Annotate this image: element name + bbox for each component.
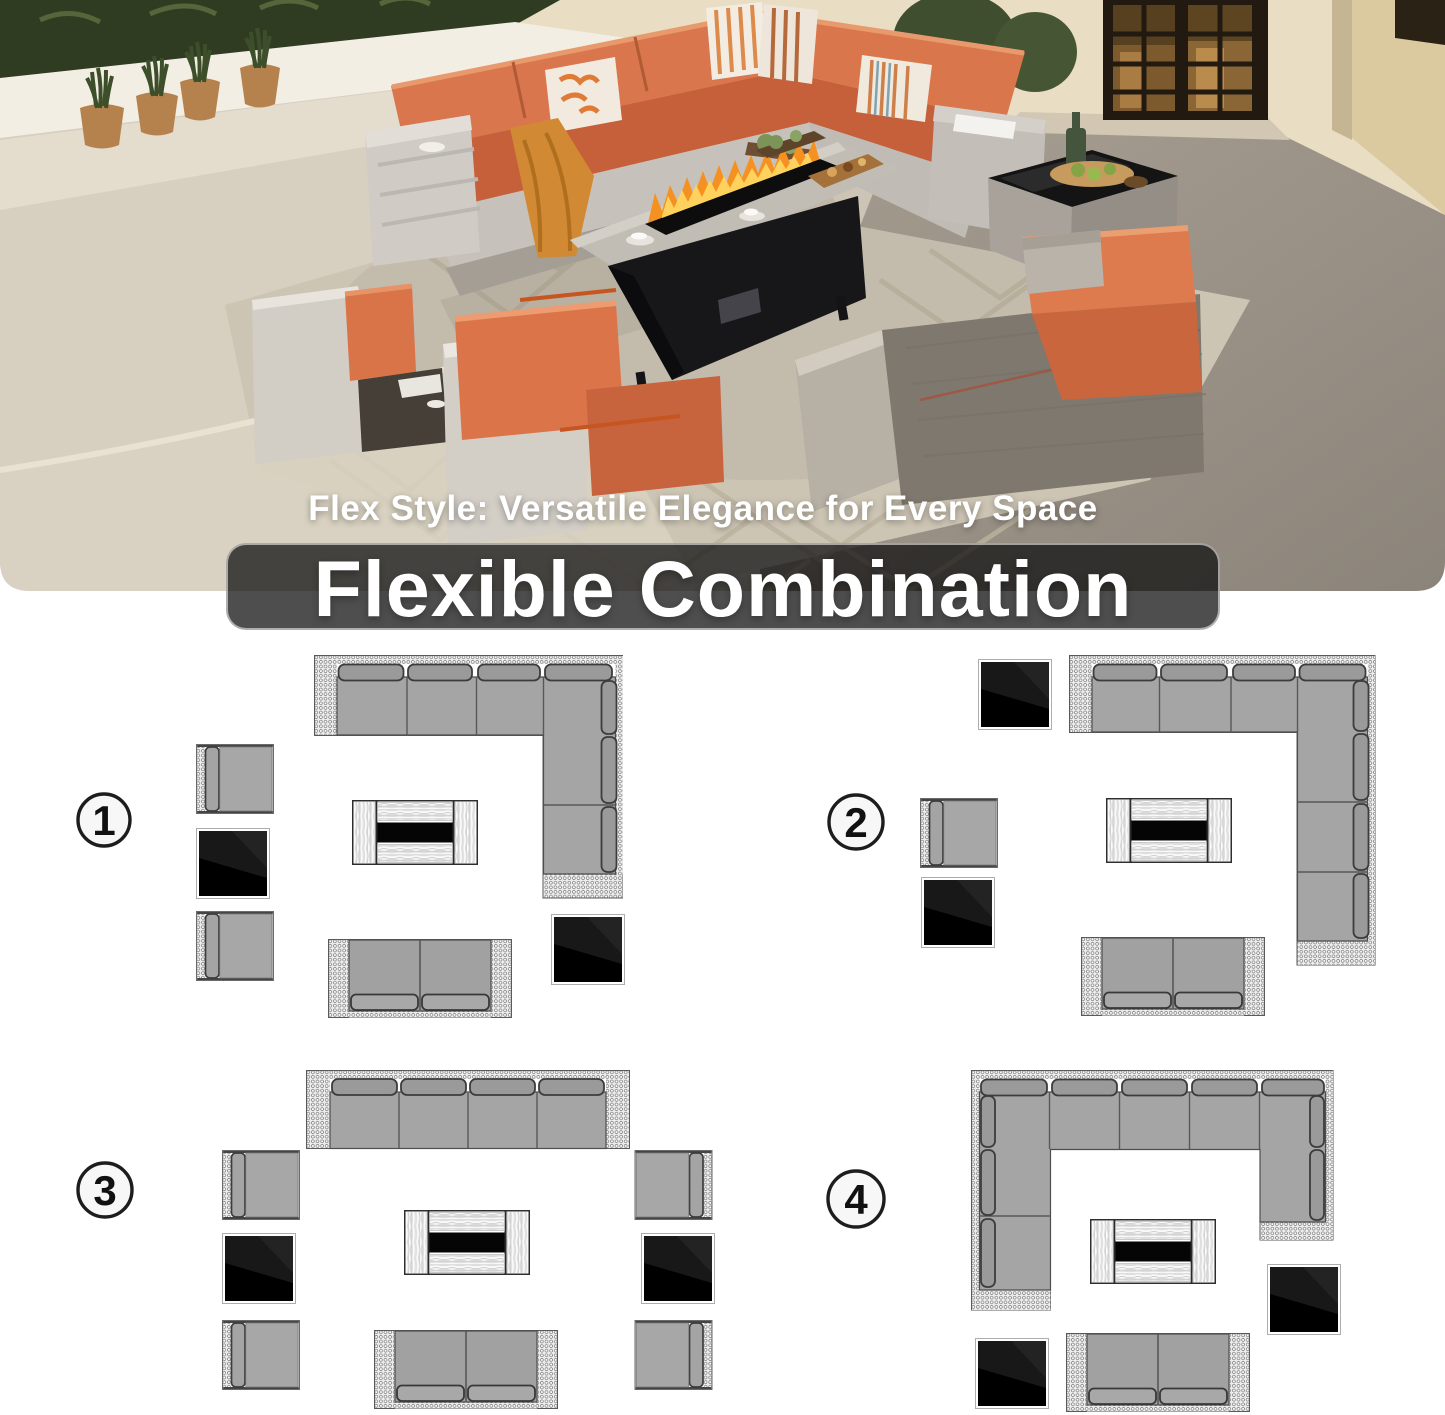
svg-text:4: 4 <box>844 1176 868 1223</box>
svg-text:3: 3 <box>93 1167 116 1214</box>
svg-text:2: 2 <box>844 799 867 846</box>
svg-text:1: 1 <box>92 797 115 844</box>
